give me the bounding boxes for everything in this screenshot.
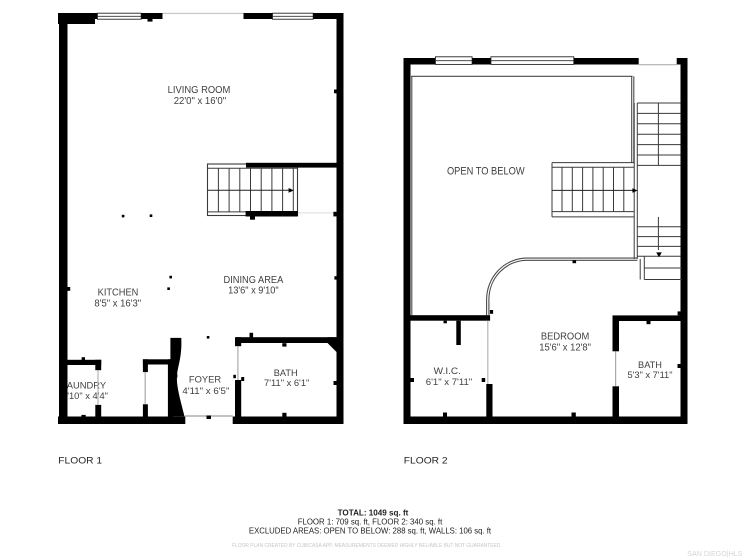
svg-text:FOYER: FOYER [189, 375, 221, 386]
svg-text:BATH: BATH [638, 360, 662, 370]
svg-text:8'5" x 16'3": 8'5" x 16'3" [94, 299, 141, 310]
svg-text:7'11" x 6'1": 7'11" x 6'1" [264, 378, 309, 388]
svg-text:FLOOR 2: FLOOR 2 [404, 455, 448, 466]
svg-text:LIVING ROOM: LIVING ROOM [168, 85, 231, 96]
svg-text:OPEN TO BELOW: OPEN TO BELOW [447, 166, 525, 178]
svg-text:13'6" x 9'10": 13'6" x 9'10" [228, 285, 279, 296]
svg-text:BEDROOM: BEDROOM [541, 332, 589, 343]
svg-text:FLOOR 1: FLOOR 1 [58, 455, 102, 466]
svg-text:W.I.C.: W.I.C. [434, 366, 461, 376]
svg-text:5'3" x 7'11": 5'3" x 7'11" [628, 370, 673, 380]
svg-text:SAN DIEGO|HLS: SAN DIEGO|HLS [687, 549, 742, 558]
svg-text:15'6" x 12'8": 15'6" x 12'8" [539, 343, 591, 354]
svg-text:BATH: BATH [274, 368, 298, 378]
svg-text:KITCHEN: KITCHEN [98, 288, 139, 299]
svg-text:4'11" x 6'5": 4'11" x 6'5" [182, 386, 229, 397]
svg-text:EXCLUDED AREAS: OPEN TO BELOW:: EXCLUDED AREAS: OPEN TO BELOW: 288 sq. f… [249, 525, 492, 535]
svg-text:LAUNDRY: LAUNDRY [62, 380, 107, 391]
svg-text:7'10" x 4'4": 7'10" x 4'4" [62, 390, 108, 401]
svg-text:FLOOR PLAN CREATED BY CUBICASA: FLOOR PLAN CREATED BY CUBICASA APP. MEAS… [232, 543, 502, 549]
svg-text:6'1" x 7'11": 6'1" x 7'11" [426, 377, 472, 387]
svg-text:22'0" x 16'0": 22'0" x 16'0" [174, 96, 227, 107]
